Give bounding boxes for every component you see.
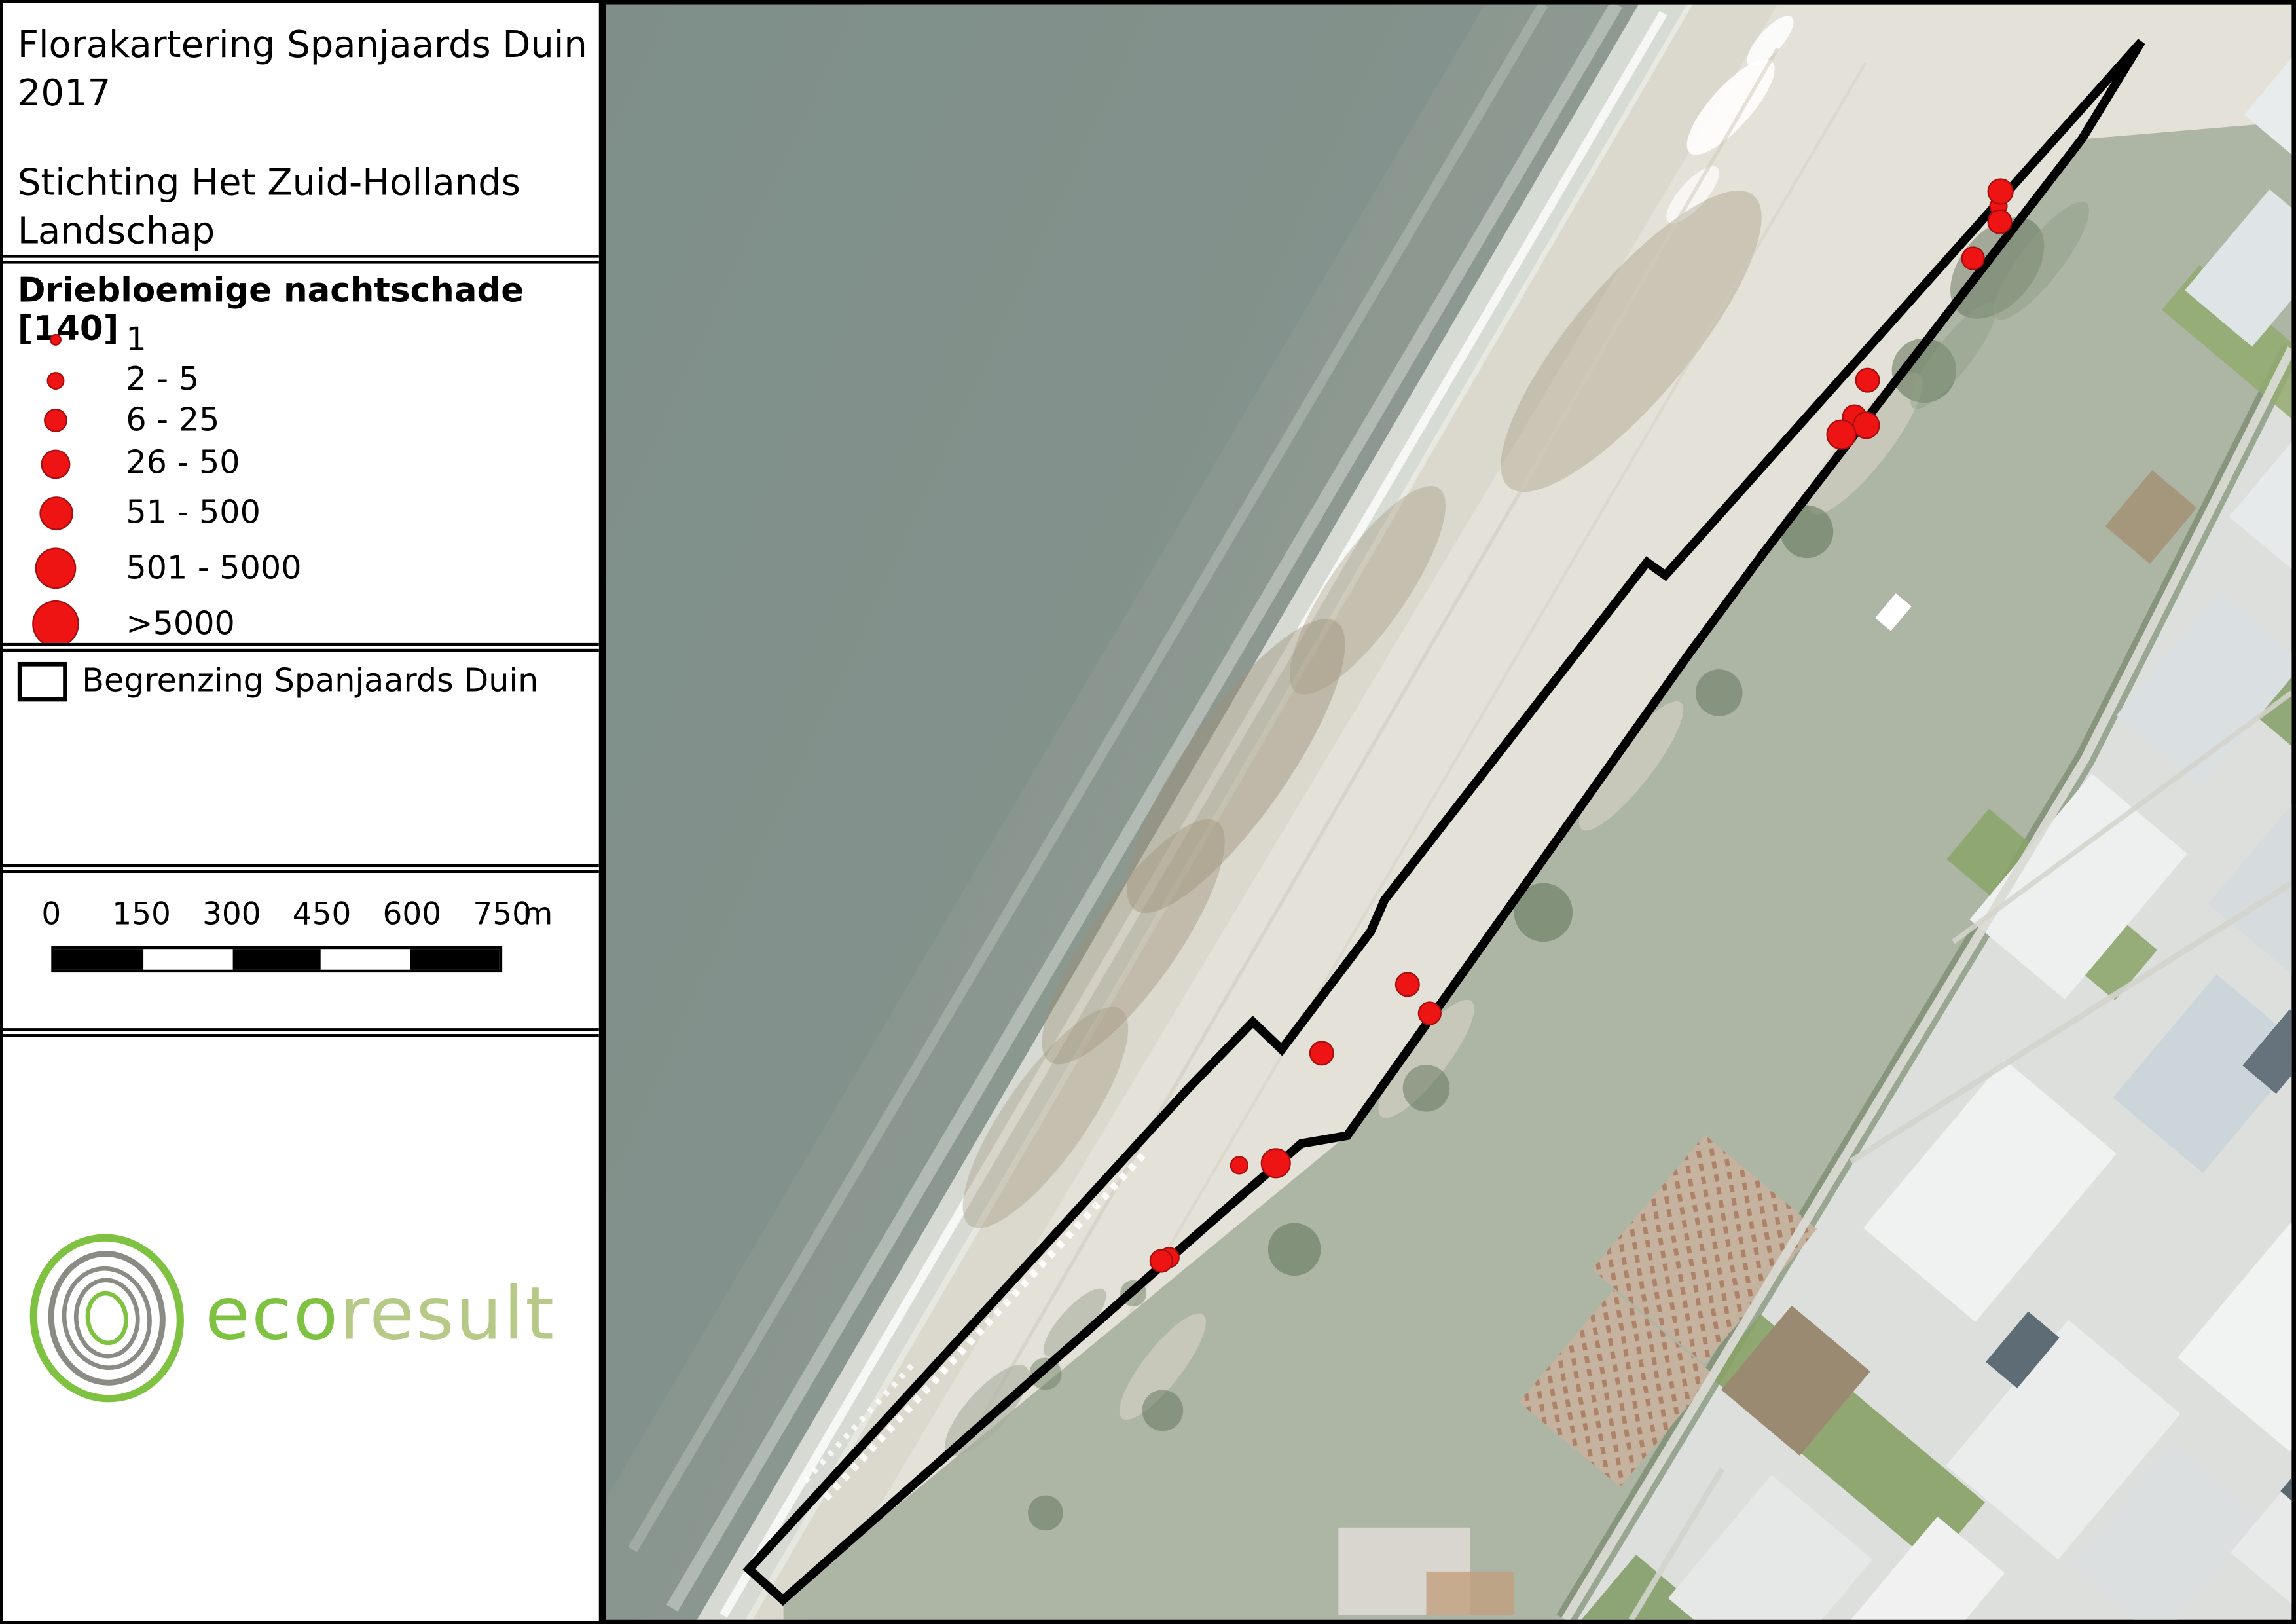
observation-dot (1396, 973, 1419, 997)
logo-word-result: result (340, 1271, 556, 1356)
logo-rings-icon (26, 1230, 187, 1406)
map-canvas (602, 0, 2296, 1624)
scalebar-tick-label: 600 (383, 896, 442, 932)
panel-divider (3, 643, 598, 652)
legend-class-row: 6 - 25 (24, 400, 507, 441)
observation-dot (1310, 1041, 1334, 1065)
org-line-2: Landschap (18, 206, 520, 255)
page-title: Florakartering Spanjaards Duin 2017 (18, 20, 587, 117)
scalebar-segment (321, 949, 410, 969)
legend-class-circle-icon (35, 547, 77, 589)
boundary-legend-label: Begrenzing Spanjaards Duin (82, 663, 538, 700)
organisation-name: Stichting Het Zuid-Hollands Landschap (18, 158, 520, 255)
observation-dot (1150, 1249, 1173, 1272)
legend-class-row: 26 - 50 (24, 441, 507, 486)
legend-class-row: 2 - 5 (24, 360, 507, 399)
legend-class-circle-icon (44, 409, 67, 432)
legend-class-circle-icon (50, 334, 62, 346)
aerial-shrubs (1028, 1496, 1063, 1531)
observation-dot (1988, 210, 2012, 234)
boundary-legend-entry: Begrenzing Spanjaards Duin (18, 662, 538, 701)
scalebar-labels: 0150300450600750m (3, 896, 598, 934)
panel-divider (3, 864, 598, 873)
ecoresult-logo: ecoresult (26, 1230, 583, 1421)
scalebar (51, 946, 502, 972)
legend-class-row: 501 - 5000 (24, 539, 507, 597)
legend-class-label: 6 - 25 (126, 402, 219, 439)
scalebar-segment (143, 949, 232, 969)
logo-word-eco: eco (205, 1271, 339, 1356)
aerial-shrubs (1781, 506, 1834, 559)
scalebar-segment (232, 949, 321, 969)
observation-dot (1988, 179, 2013, 204)
aerial-map-svg (606, 5, 2291, 1620)
observation-dot (1853, 413, 1880, 439)
legend-class-circle-icon (39, 496, 72, 529)
legend-class-label: 501 - 5000 (126, 550, 301, 587)
boundary-outline-symbol (18, 662, 67, 701)
aerial-shrubs (1403, 1065, 1450, 1112)
aerial-shrubs (1268, 1223, 1321, 1276)
observation-dot (1856, 369, 1880, 392)
legend-class-label: 1 (126, 322, 146, 358)
left-info-panel: Florakartering Spanjaards Duin 2017 Stic… (0, 0, 602, 1624)
scalebar-tick-label: 450 (293, 896, 352, 932)
legend-class-label: 51 - 500 (126, 494, 261, 531)
title-line-2: 2017 (18, 69, 587, 117)
aerial-shrubs (1142, 1390, 1184, 1431)
observation-dot (1231, 1156, 1248, 1173)
scalebar-segment (54, 949, 143, 969)
observation-dot (1962, 248, 1984, 270)
legend-class-circle-icon (41, 449, 71, 479)
aerial-shrubs (1696, 669, 1743, 716)
legend-class-circle-icon (47, 371, 65, 389)
legend-class-row: 51 - 500 (24, 487, 507, 540)
scalebar-segment (410, 949, 500, 969)
title-line-1: Florakartering Spanjaards Duin (18, 20, 587, 69)
legend-class-label: 2 - 5 (126, 361, 199, 398)
observation-dot (1827, 420, 1856, 449)
scalebar-tick-label: 150 (112, 896, 171, 932)
panel-divider (3, 255, 598, 263)
scalebar-tick-label: 300 (202, 896, 261, 932)
scalebar-unit-label: m (522, 896, 553, 932)
observation-dot (1262, 1149, 1290, 1177)
map-sheet: Florakartering Spanjaards Duin 2017 Stic… (0, 0, 2296, 1624)
legend-class-circle-icon (32, 600, 79, 648)
legend-size-classes: 12 - 56 - 2526 - 5051 - 500501 - 5000>50… (24, 320, 507, 650)
legend-class-label: 26 - 50 (126, 445, 240, 482)
legend-class-label: >5000 (126, 606, 234, 642)
legend-class-row: 1 (24, 320, 507, 361)
observation-dot (1419, 1003, 1441, 1025)
org-line-1: Stichting Het Zuid-Hollands (18, 158, 520, 207)
logo-wordmark: ecoresult (205, 1271, 555, 1356)
panel-divider (3, 1028, 598, 1037)
scalebar-tick-label: 0 (41, 896, 61, 932)
